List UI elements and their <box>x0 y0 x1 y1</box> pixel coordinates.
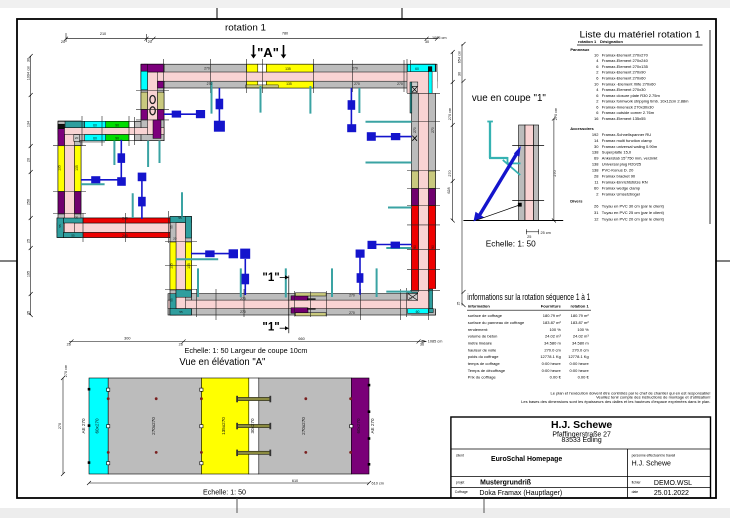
svg-text:610: 610 <box>292 479 298 483</box>
svg-text:270: 270 <box>448 170 452 176</box>
svg-text:34.580 m: 34.580 m <box>544 341 561 346</box>
svg-text:55: 55 <box>170 225 174 229</box>
svg-text:0:00 heure: 0:00 heure <box>570 361 590 366</box>
svg-text:135: 135 <box>285 67 291 71</box>
svg-text:780: 780 <box>282 31 288 35</box>
svg-text:26: 26 <box>179 343 183 347</box>
svg-text:0:00 heure: 0:00 heure <box>542 361 562 366</box>
svg-text:135: 135 <box>187 263 191 269</box>
svg-text:Echelle: 1: 50: Echelle: 1: 50 <box>203 488 246 497</box>
svg-text:300: 300 <box>124 337 130 341</box>
svg-text:Coffrage: Coffrage <box>455 490 468 494</box>
svg-text:270: 270 <box>354 82 360 86</box>
svg-text:temps de coffrage: temps de coffrage <box>468 361 501 366</box>
svg-text:90: 90 <box>413 245 417 249</box>
svg-text:90: 90 <box>115 123 119 127</box>
svg-text:25: 25 <box>26 239 30 243</box>
svg-text:fichier: fichier <box>632 480 642 484</box>
svg-text:Universal plug R20/25: Universal plug R20/25 <box>602 162 642 167</box>
svg-text:24.02 m³: 24.02 m³ <box>545 334 561 339</box>
svg-text:20: 20 <box>75 216 79 220</box>
svg-text:vue en coupe "1": vue en coupe "1" <box>472 93 546 104</box>
svg-text:270x270: 270x270 <box>301 417 306 435</box>
svg-text:135: 135 <box>75 165 79 171</box>
svg-text:25: 25 <box>26 311 30 315</box>
svg-text:20: 20 <box>61 40 65 44</box>
svg-text:projet: projet <box>456 480 465 484</box>
svg-text:270.0 cm: 270.0 cm <box>572 347 589 352</box>
svg-text:10: 10 <box>594 81 599 86</box>
svg-text:660: 660 <box>298 337 304 341</box>
svg-text:138: 138 <box>592 168 599 173</box>
svg-text:EuroSchal Homepage: EuroSchal Homepage <box>491 456 562 463</box>
svg-text:195: 195 <box>26 271 30 277</box>
svg-text:30: 30 <box>458 72 462 76</box>
svg-text:12778.1 Kg: 12778.1 Kg <box>568 354 588 359</box>
svg-text:20: 20 <box>173 237 177 241</box>
svg-text:Echelle: 1: 50 Largeur de co: Echelle: 1: 50 Largeur de coupe 10cm <box>185 346 308 355</box>
svg-text:60: 60 <box>415 67 419 71</box>
svg-text:100 %: 100 % <box>577 327 589 332</box>
svg-text:134: 134 <box>26 121 30 127</box>
svg-text:31: 31 <box>594 210 599 215</box>
svg-text:Accessoires: Accessoires <box>570 126 594 131</box>
svg-text:Echelle: 1: 50: Echelle: 1: 50 <box>486 238 536 248</box>
svg-text:Framax-Element 270x90: Framax-Element 270x90 <box>602 70 647 75</box>
svg-text:135: 135 <box>286 82 292 86</box>
svg-text:Prix du coffrage: Prix du coffrage <box>468 375 497 380</box>
svg-text:25: 25 <box>457 302 461 306</box>
svg-text:270: 270 <box>553 170 557 176</box>
svg-text:83533 Edling: 83533 Edling <box>561 437 601 444</box>
svg-text:270: 270 <box>349 311 355 315</box>
svg-text:55: 55 <box>58 224 62 228</box>
svg-text:0.00 €: 0.00 € <box>578 375 590 380</box>
svg-text:270: 270 <box>431 127 435 133</box>
svg-text:16: 16 <box>594 116 599 121</box>
svg-text:rotation 1: rotation 1 <box>578 39 597 44</box>
svg-text:personne effectuant le travail: personne effectuant le travail <box>632 453 676 457</box>
svg-text:138: 138 <box>592 162 599 167</box>
svg-text:0:00 heure: 0:00 heure <box>542 368 562 373</box>
svg-text:30x270: 30x270 <box>250 418 255 434</box>
svg-text:Tuyau en PVC 20 cm (par le cli: Tuyau en PVC 20 cm (par le client) <box>602 216 665 221</box>
svg-text:Divers: Divers <box>570 199 583 204</box>
svg-text:Tuyau en PVC 30 cm (par le cli: Tuyau en PVC 30 cm (par le client) <box>602 204 665 209</box>
svg-text:Framax-Einrichtstütze RN: Framax-Einrichtstütze RN <box>602 179 648 184</box>
svg-text:Framax-Element 270x270: Framax-Element 270x270 <box>602 52 649 57</box>
svg-text:26: 26 <box>594 204 599 209</box>
svg-text:36: 36 <box>420 343 424 347</box>
svg-text:30: 30 <box>594 144 599 149</box>
svg-text:12778.1 Kg: 12778.1 Kg <box>540 354 560 359</box>
svg-text:135x270: 135x270 <box>221 417 226 435</box>
svg-text:55: 55 <box>170 298 174 302</box>
svg-text:1094 cm: 1094 cm <box>26 66 30 81</box>
svg-text:183.87 m²: 183.87 m² <box>543 320 562 325</box>
svg-text:informations sur la rotation: informations sur la rotation séquence 1 … <box>467 292 590 302</box>
svg-text:55: 55 <box>71 234 75 238</box>
svg-text:180.79 m²: 180.79 m² <box>571 313 590 318</box>
svg-text:60: 60 <box>416 310 420 314</box>
svg-text:12: 12 <box>594 216 599 221</box>
svg-text:Framax Umsetzbügel: Framax Umsetzbügel <box>602 191 640 196</box>
svg-text:100 %: 100 % <box>549 327 561 332</box>
svg-text:610 cm: 610 cm <box>372 482 384 486</box>
svg-text:24.02 m³: 24.02 m³ <box>573 334 589 339</box>
svg-text:69: 69 <box>594 156 599 161</box>
svg-text:60: 60 <box>594 185 599 190</box>
svg-text:20: 20 <box>148 40 152 44</box>
svg-text:hauteur de voile: hauteur de voile <box>468 347 497 352</box>
svg-text:Framax bracket 90: Framax bracket 90 <box>602 173 636 178</box>
svg-text:654 cm: 654 cm <box>458 51 462 63</box>
svg-text:270: 270 <box>413 127 417 133</box>
svg-text:270: 270 <box>397 82 403 86</box>
svg-text:30: 30 <box>26 58 30 62</box>
svg-text:270 cm: 270 cm <box>448 108 452 120</box>
svg-text:256: 256 <box>26 199 30 205</box>
svg-text:270: 270 <box>240 310 246 314</box>
svg-text:1085 cm: 1085 cm <box>432 36 447 40</box>
svg-text:DEMO.WSL: DEMO.WSL <box>654 480 692 487</box>
svg-text:rotation 1: rotation 1 <box>225 23 266 33</box>
svg-text:25.01.2022: 25.01.2022 <box>654 490 689 497</box>
svg-text:Framax-Element 135x55: Framax-Element 135x55 <box>602 116 647 121</box>
svg-text:55: 55 <box>178 216 182 220</box>
svg-text:60: 60 <box>93 123 97 127</box>
svg-text:90: 90 <box>431 245 435 249</box>
svg-text:270x270: 270x270 <box>151 417 156 435</box>
svg-text:Temps de décoffrage: Temps de décoffrage <box>468 368 506 373</box>
svg-text:60: 60 <box>93 136 97 140</box>
svg-text:rendement:: rendement: <box>468 327 488 332</box>
svg-text:28: 28 <box>594 173 599 178</box>
svg-text:Désignation: Désignation <box>600 39 623 44</box>
svg-text:surface de coffrage: surface de coffrage <box>468 313 503 318</box>
svg-text:Doka Framax (Hauptlager): Doka Framax (Hauptlager) <box>479 490 562 497</box>
svg-text:volume de béton: volume de béton <box>468 334 498 339</box>
svg-text:30: 30 <box>425 40 429 44</box>
svg-text:20: 20 <box>75 136 79 140</box>
svg-text:270: 270 <box>352 66 358 70</box>
svg-text:information: information <box>468 304 491 309</box>
svg-text:180.79 m²: 180.79 m² <box>543 313 562 318</box>
svg-text:138: 138 <box>592 150 599 155</box>
svg-text:Framax-Inneneck 270x30x30: Framax-Inneneck 270x30x30 <box>602 104 655 109</box>
svg-text:AE 270: AE 270 <box>81 418 86 434</box>
svg-text:10: 10 <box>594 52 599 57</box>
svg-text:H.J. Schewe: H.J. Schewe <box>632 460 671 467</box>
svg-text:192: 192 <box>592 132 599 137</box>
svg-text:Framax universal waling 0.90m: Framax universal waling 0.90m <box>602 144 658 149</box>
svg-text:270 cm: 270 cm <box>64 365 68 377</box>
svg-text:Framax closure plate R30 2.75m: Framax closure plate R30 2.75m <box>602 93 661 98</box>
svg-text:270: 270 <box>349 293 355 297</box>
svg-text:H.J. Schewe: H.J. Schewe <box>551 419 612 431</box>
svg-text:mètre linéaire: mètre linéaire <box>468 341 493 346</box>
svg-text:Framax wedge clamp: Framax wedge clamp <box>602 185 641 190</box>
svg-text:Mustergrundriß: Mustergrundriß <box>480 480 532 487</box>
svg-text:Superplatte 15,0: Superplatte 15,0 <box>602 150 632 155</box>
svg-text:Framax-Element 270x30: Framax-Element 270x30 <box>602 87 647 92</box>
svg-text:183.87 m²: 183.87 m² <box>571 320 590 325</box>
svg-text:1085 cm: 1085 cm <box>428 340 443 344</box>
svg-text:210: 210 <box>100 32 106 36</box>
svg-text:240: 240 <box>122 216 128 220</box>
svg-text:Framax outside corner 2.76m: Framax outside corner 2.76m <box>602 110 655 115</box>
svg-text:Tuyau en PVC 25 cm (par le cli: Tuyau en PVC 25 cm (par le client) <box>602 210 665 215</box>
svg-text:34.580 m: 34.580 m <box>572 341 589 346</box>
svg-text:Panneaux: Panneaux <box>570 47 590 52</box>
svg-text:270: 270 <box>240 297 246 301</box>
svg-text:0:00 heure: 0:00 heure <box>570 368 590 373</box>
svg-text:"1": "1" <box>262 322 279 334</box>
svg-text:270.0 cm: 270.0 cm <box>544 347 561 352</box>
svg-text:14: 14 <box>594 138 599 143</box>
svg-text:PVC-Konus D. 20: PVC-Konus D. 20 <box>602 168 634 173</box>
svg-text:0.00 €: 0.00 € <box>550 375 562 380</box>
svg-text:Liste du matériel rotation 1: Liste du matériel rotation 1 <box>580 29 701 40</box>
svg-text:poids du coffrage: poids du coffrage <box>468 354 499 359</box>
svg-text:Framax-Element 270x135: Framax-Element 270x135 <box>602 64 649 69</box>
svg-text:Framax-Element 270x240: Framax-Element 270x240 <box>602 58 649 63</box>
svg-text:270: 270 <box>58 423 62 429</box>
svg-text:60x270: 60x270 <box>356 418 361 434</box>
svg-text:"1": "1" <box>262 272 279 284</box>
svg-text:270 cm: 270 cm <box>554 108 558 120</box>
svg-text:AE 270: AE 270 <box>370 418 375 434</box>
svg-text:Framax formwork stripping timb: Framax formwork stripping timb. 10x12cm … <box>602 99 689 104</box>
svg-text:Vue en élévation "A": Vue en élévation "A" <box>179 357 265 368</box>
svg-text:26: 26 <box>67 343 71 347</box>
svg-text:270: 270 <box>207 82 213 86</box>
svg-text:Ankerstab 15°750 mm, verzinkt: Ankerstab 15°750 mm, verzinkt <box>602 156 659 161</box>
svg-text:240: 240 <box>122 234 128 238</box>
svg-text:date: date <box>632 490 639 494</box>
svg-text:Framax-Schnellspanner RU: Framax-Schnellspanner RU <box>602 132 651 137</box>
svg-text:Framax-Element 270x60: Framax-Element 270x60 <box>602 75 647 80</box>
svg-text:60x270: 60x270 <box>95 418 100 434</box>
svg-text:25 cm: 25 cm <box>541 231 551 235</box>
svg-text:135: 135 <box>170 263 174 269</box>
svg-text:Les bases des dimensions sont: Les bases des dimensions sont les épaiss… <box>521 399 710 404</box>
svg-text:628: 628 <box>447 187 451 193</box>
svg-text:Framax multi function clamp: Framax multi function clamp <box>602 138 653 143</box>
svg-text:client: client <box>456 454 464 458</box>
svg-text:90: 90 <box>115 136 119 140</box>
svg-text:Framax -Element Xlife 270x60: Framax -Element Xlife 270x60 <box>602 81 657 86</box>
svg-text:surface du panneau de coffrage: surface du panneau de coffrage <box>468 320 525 325</box>
svg-text:270: 270 <box>204 66 210 70</box>
svg-text:rotation 1: rotation 1 <box>570 304 589 309</box>
svg-text:"A": "A" <box>257 45 279 60</box>
svg-text:135: 135 <box>58 165 62 171</box>
svg-text:20: 20 <box>26 158 30 162</box>
svg-text:Fourniture: Fourniture <box>541 304 562 309</box>
svg-text:55: 55 <box>179 310 183 314</box>
svg-text:25: 25 <box>409 297 413 301</box>
